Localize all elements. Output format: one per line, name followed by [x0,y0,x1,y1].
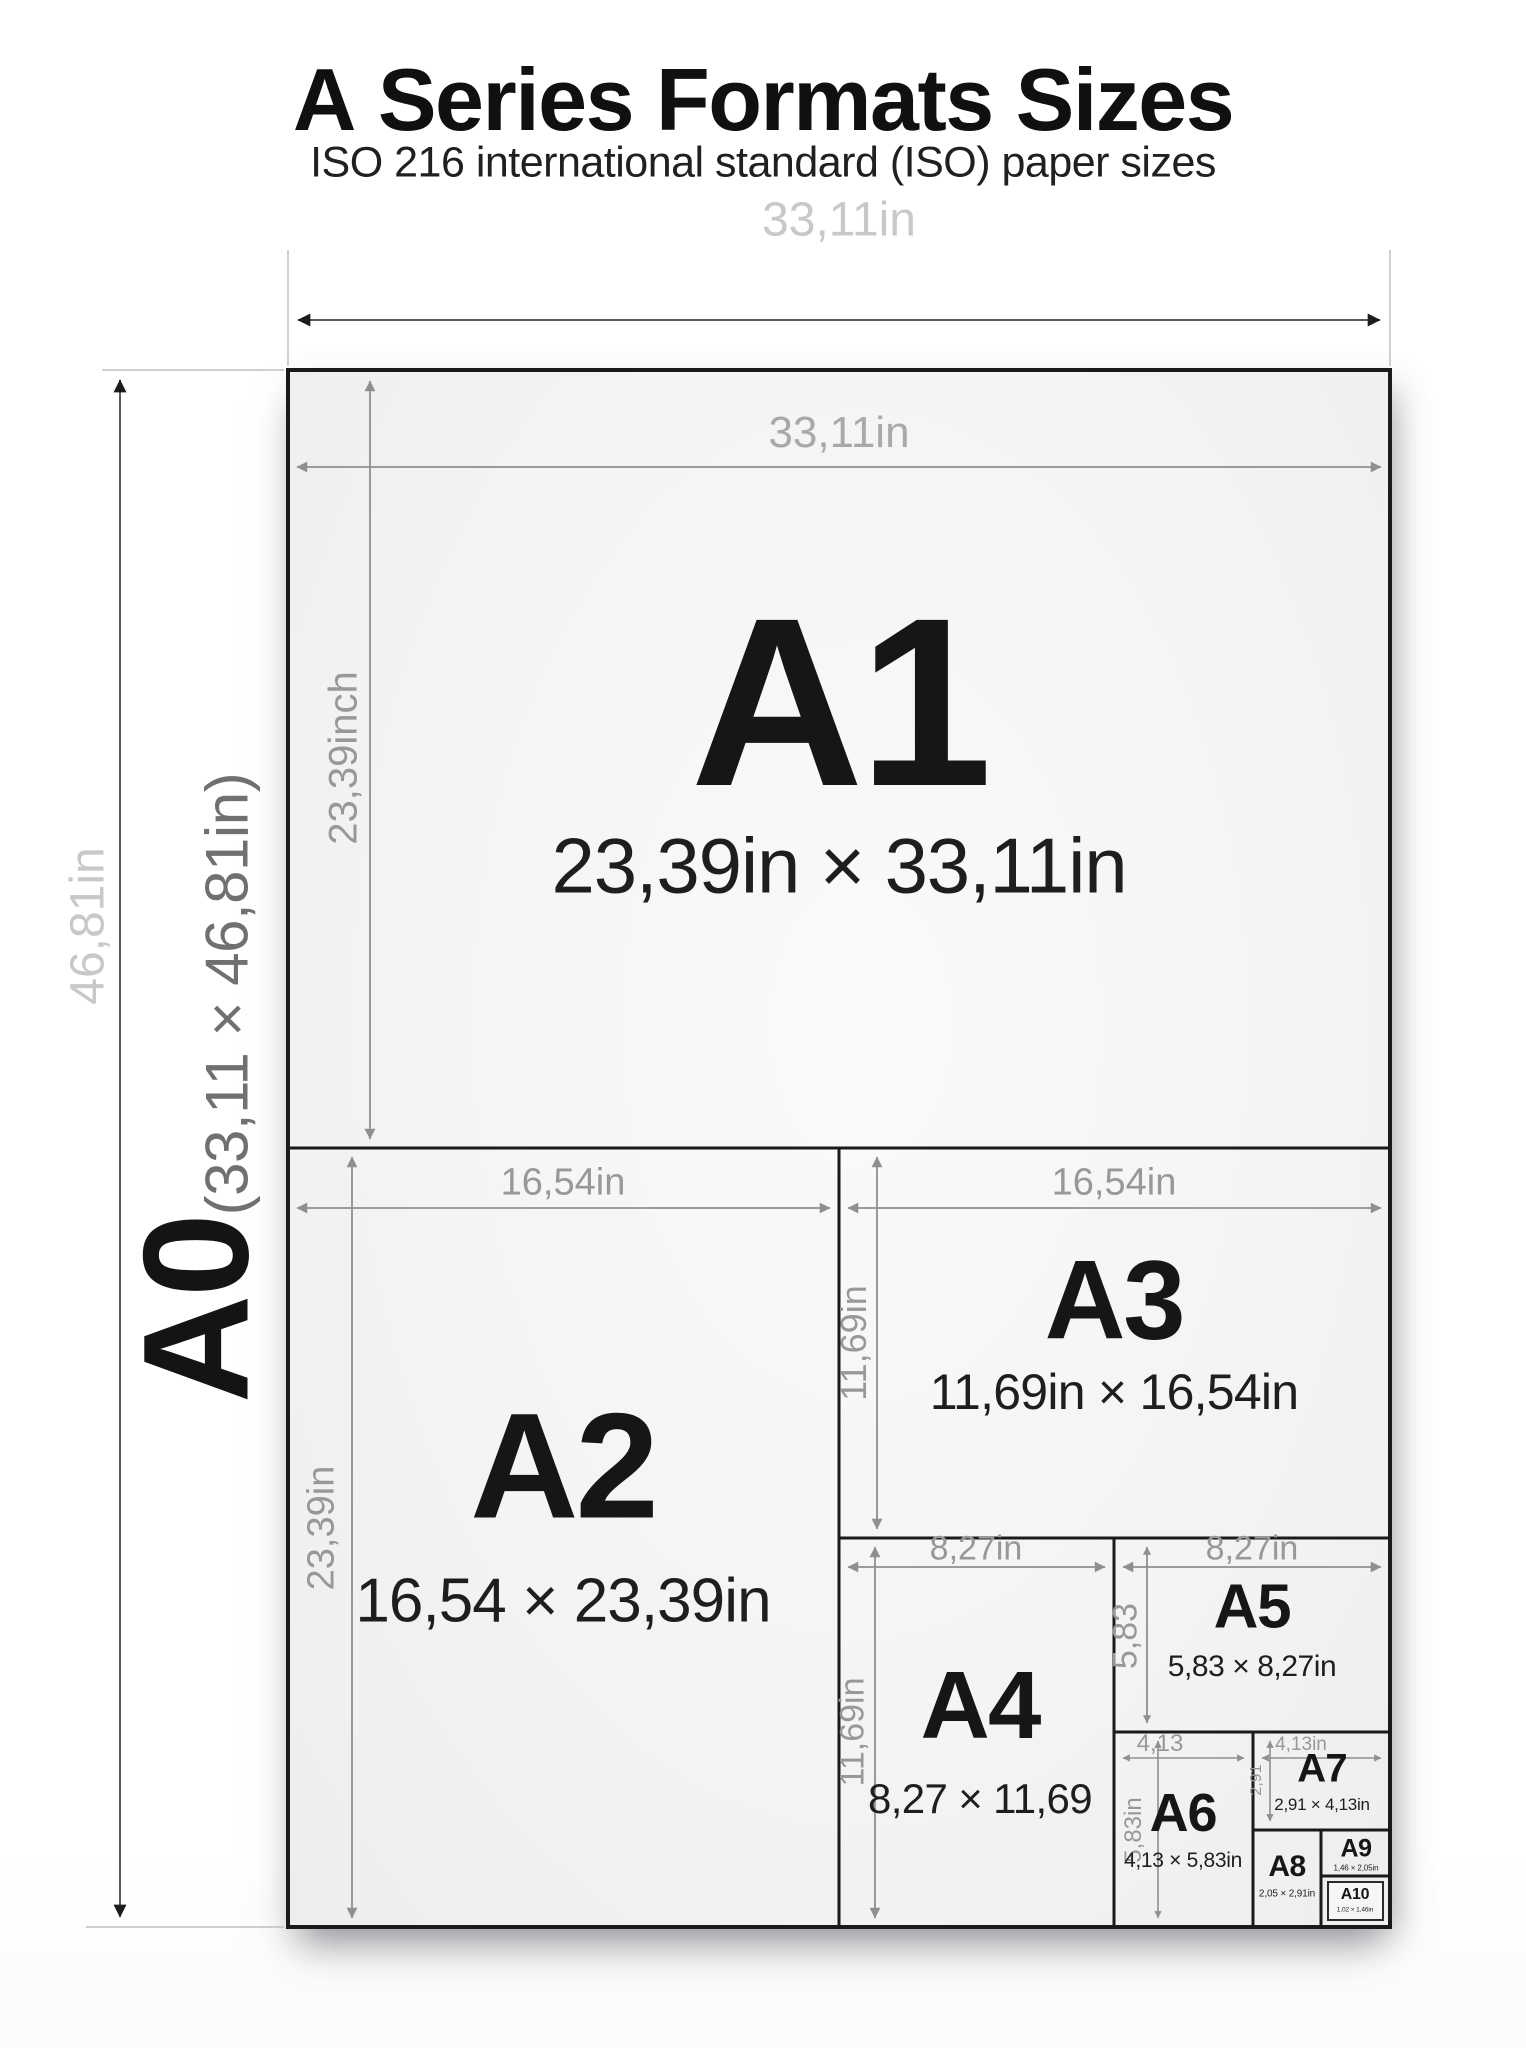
a-series-poster: A Series Formats Sizes ISO 216 internati… [0,0,1526,2048]
a3-name: A3 [1045,1236,1184,1365]
a1-width-dimension-label: 33,11in [768,408,909,458]
a1-size: 23,39in × 33,11in [551,821,1126,912]
a7-size: 2,91 × 4,13in [1274,1795,1369,1815]
a6-width-dimension-label: 4,13 [1137,1730,1184,1758]
outer-height-dimension-label: 46,81in [61,847,116,1004]
a9-size: 1,46 × 2,05in [1334,1864,1379,1873]
outer-width-dimension-label: 33,11in [762,193,916,248]
a8-size: 2,05 × 2,91in [1259,1889,1315,1900]
a2-width-dimension-label: 16,54in [501,1162,626,1205]
a0-dimensions: (33,11 × 46,81in) [193,773,262,1215]
a4-size: 8,27 × 11,69 [868,1775,1092,1823]
a0-name: A0 [110,1215,283,1403]
a3-size: 11,69in × 16,54in [930,1363,1299,1421]
a10-name: A10 [1341,1886,1369,1904]
a8-name: A8 [1268,1850,1305,1884]
a7-height-dimension-label: 2,91 [1248,1764,1266,1795]
a1-height-dimension-label: 23,39inch [322,671,367,844]
a7-name: A7 [1297,1747,1347,1792]
a6-name: A6 [1150,1782,1217,1844]
a5-width-dimension-label: 8,27in [1206,1530,1299,1569]
a6-size: 4,13 × 5,83in [1124,1849,1242,1873]
a3-height-dimension-label: 11,69in [833,1285,875,1400]
a1-name: A1 [690,564,987,840]
a4-name: A4 [921,1651,1040,1761]
a2-size: 16,54 × 23,39in [355,1566,770,1637]
a0-label: A0(33,11 × 46,81in) [110,773,283,1403]
a5-name: A5 [1214,1572,1291,1643]
a3-width-dimension-label: 16,54in [1052,1162,1177,1205]
a2-name: A2 [470,1380,656,1553]
a5-height-dimension-label: 5,83 [1107,1603,1146,1669]
a10-size: 1,02 × 1,46in [1337,1907,1374,1914]
a2-height-dimension-label: 23,39in [301,1466,344,1591]
a4-width-dimension-label: 8,27in [930,1530,1023,1569]
a9-name: A9 [1341,1835,1372,1864]
a5-size: 5,83 × 8,27in [1168,1650,1336,1684]
a4-height-dimension-label: 11,69in [834,1677,873,1786]
